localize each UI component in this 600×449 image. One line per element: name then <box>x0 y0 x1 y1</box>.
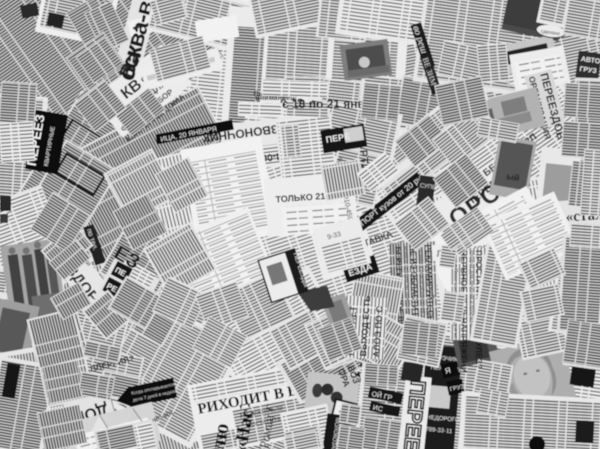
svg-text:лю: лю <box>205 421 233 449</box>
